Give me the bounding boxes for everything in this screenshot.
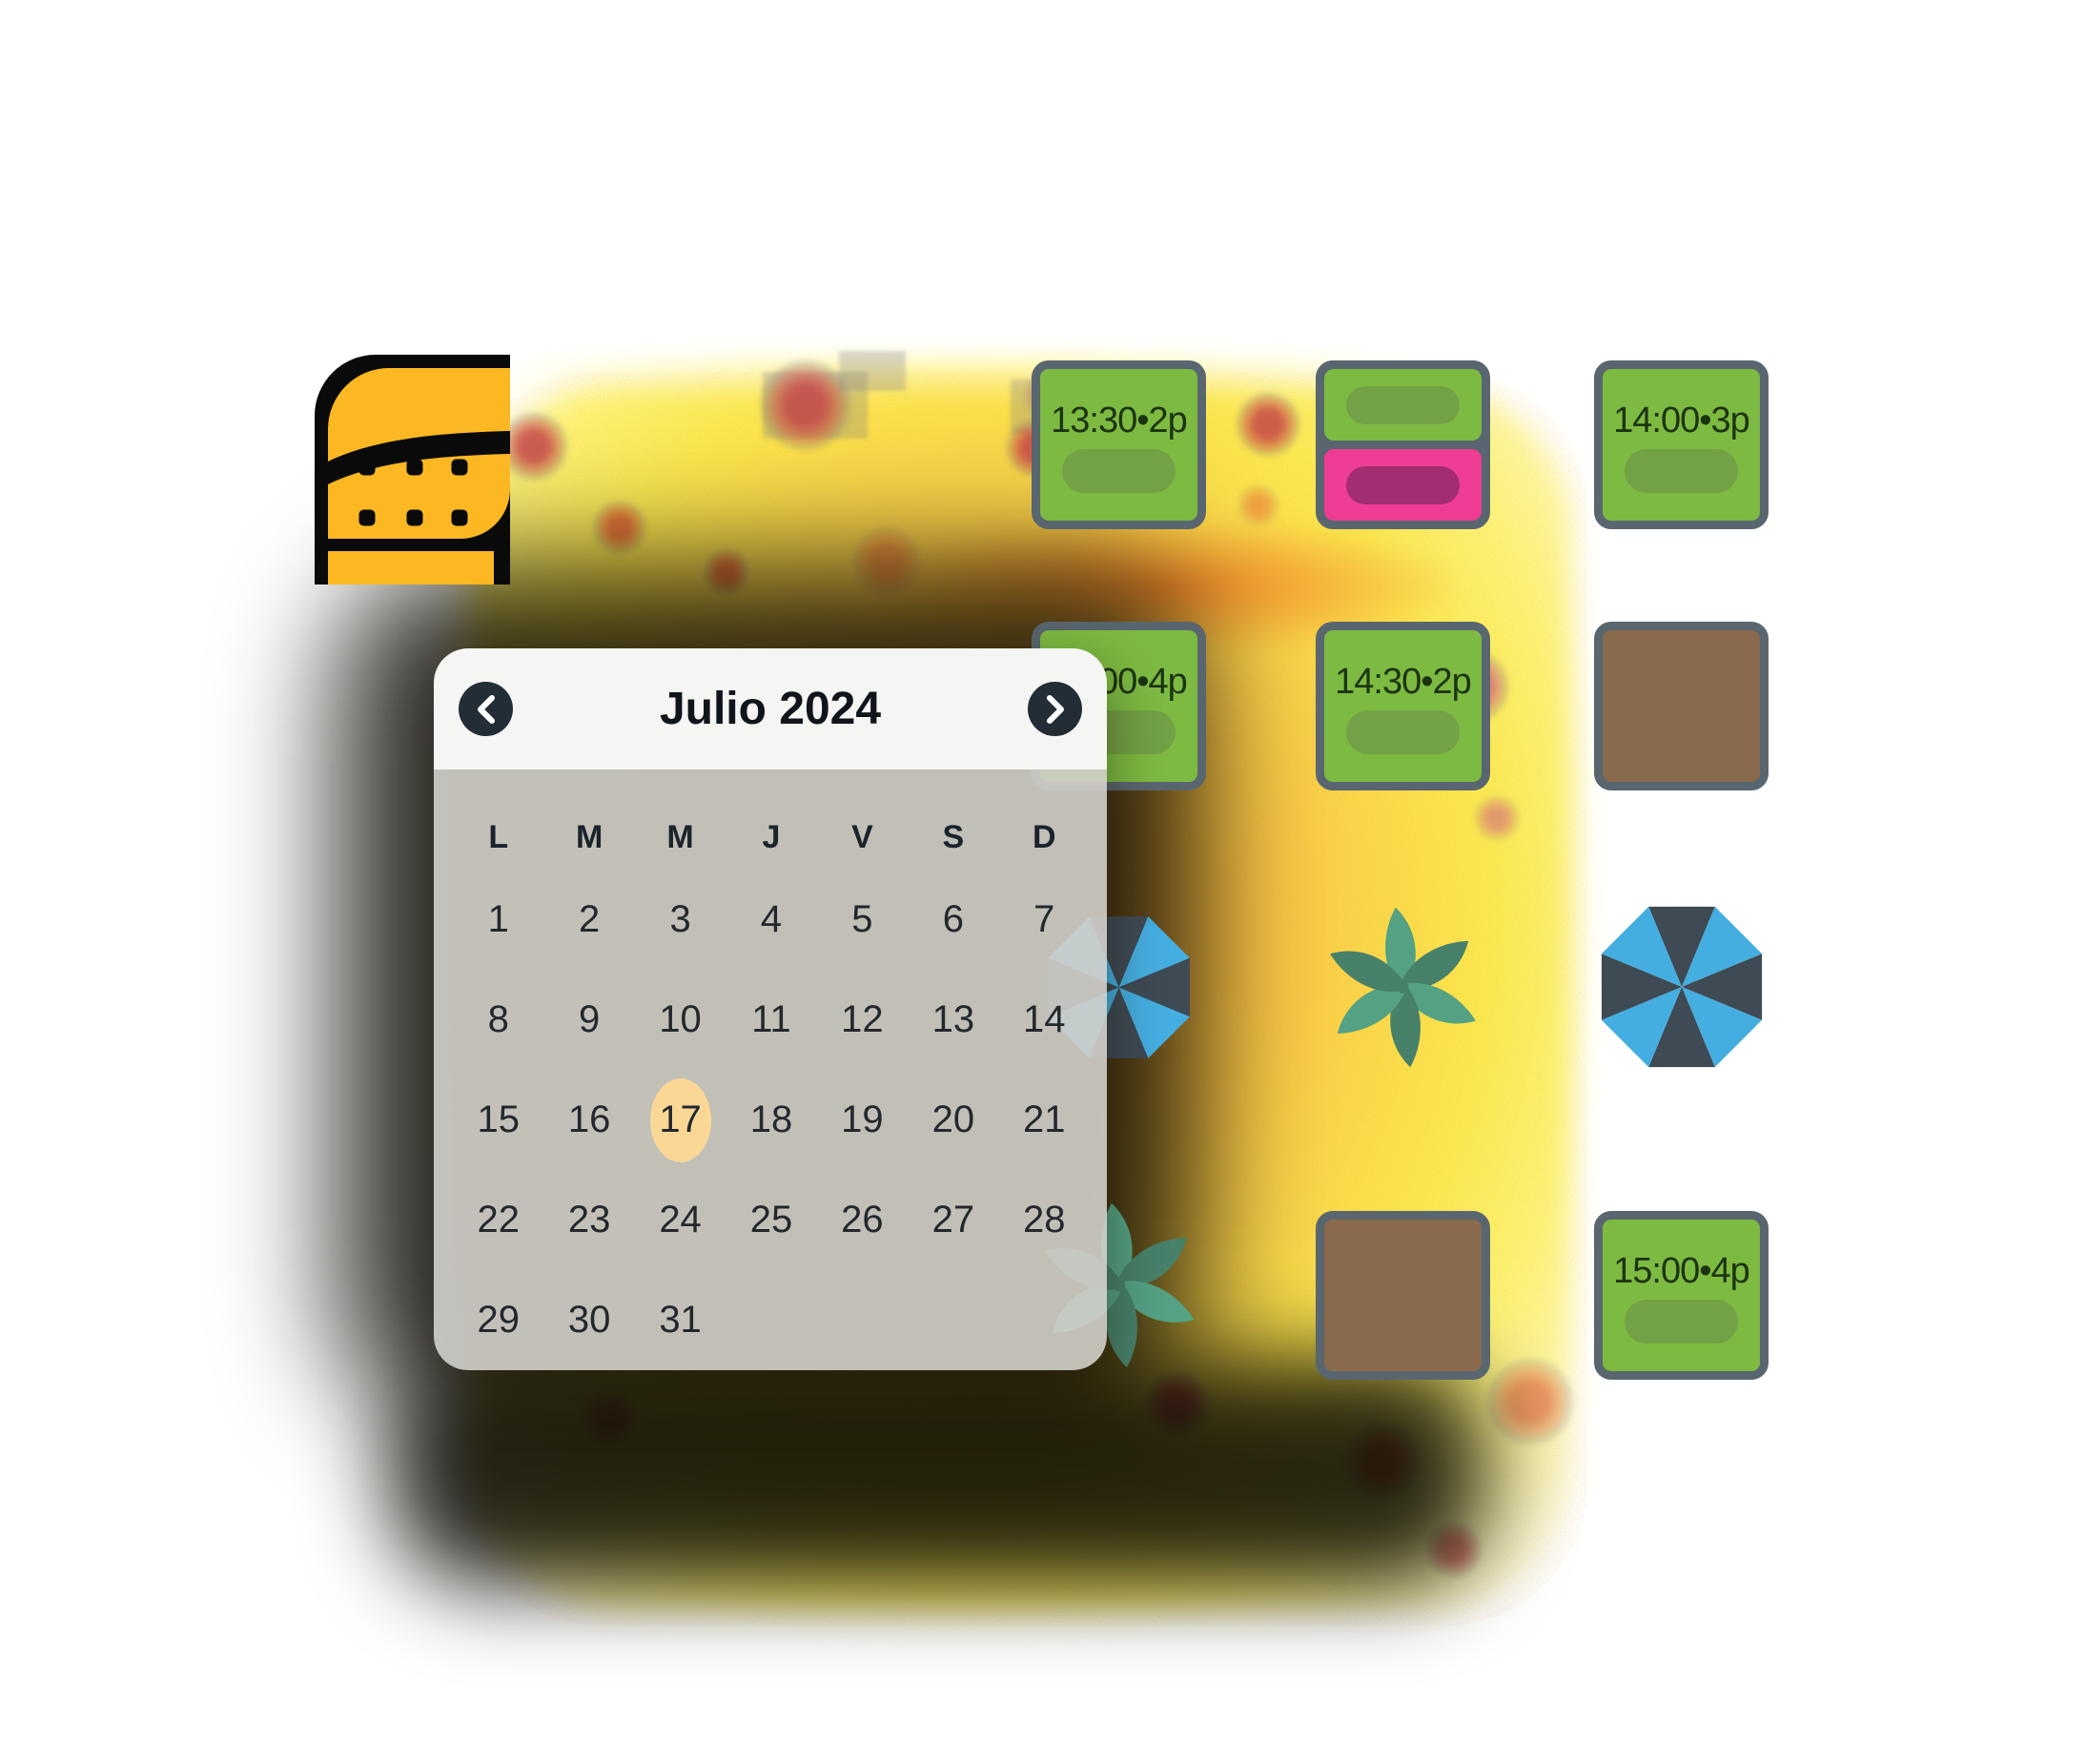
day-number: 18 — [750, 1098, 793, 1141]
empty-table[interactable] — [1316, 1211, 1490, 1380]
table-seat-indicator — [1625, 449, 1738, 493]
day-number: 13 — [932, 998, 975, 1041]
day-cell[interactable]: 9 — [543, 970, 634, 1070]
day-cell[interactable]: 2 — [543, 870, 634, 970]
day-number: 15 — [477, 1098, 520, 1141]
noise-speckle — [760, 359, 851, 451]
reservation-time-label: 13:30•2p — [1051, 401, 1187, 440]
day-cell-empty — [908, 1270, 998, 1370]
day-cell[interactable]: 30 — [543, 1270, 634, 1370]
day-cell[interactable]: 23 — [543, 1170, 634, 1270]
day-number: 21 — [1023, 1098, 1066, 1141]
day-number: 16 — [568, 1098, 611, 1141]
date-picker: Julio 2024 LMMJVSD 123456789101112131415… — [434, 648, 1107, 1370]
noise-speckle — [1425, 1521, 1483, 1578]
day-cell-empty — [817, 1270, 908, 1370]
reservation-time-label: 15:00•4p — [1613, 1252, 1749, 1290]
day-cell[interactable]: 28 — [999, 1170, 1090, 1270]
weekday-label: V — [817, 812, 908, 862]
day-cell[interactable]: 6 — [908, 870, 998, 970]
day-number: 27 — [932, 1199, 975, 1241]
reservation-card[interactable]: 15:00•4p — [1594, 1211, 1769, 1380]
day-number: 22 — [477, 1199, 520, 1241]
weekday-label: S — [908, 812, 998, 862]
day-number: 19 — [841, 1098, 884, 1141]
day-cell[interactable]: 18 — [726, 1070, 816, 1170]
reservation-card[interactable]: 13:30•2p — [1032, 360, 1206, 529]
weekday-label: L — [453, 812, 543, 862]
day-number: 12 — [841, 998, 884, 1041]
day-cell[interactable]: 8 — [453, 970, 543, 1070]
reservation-time-label: 14:30•2p — [1335, 663, 1471, 701]
day-number: 9 — [579, 998, 600, 1041]
noise-speckle — [1474, 795, 1520, 841]
reservation-time-label: 14:00•3p — [1613, 401, 1749, 440]
date-picker-header: Julio 2024 — [434, 648, 1107, 769]
plant-icon — [1319, 904, 1486, 1076]
noise-speckle — [704, 549, 749, 595]
day-cell[interactable]: 22 — [453, 1170, 543, 1270]
previous-month-button[interactable] — [459, 682, 513, 736]
day-cell[interactable]: 21 — [999, 1070, 1090, 1170]
reservation-segment-pink — [1324, 449, 1482, 521]
weekday-header-row: LMMJVSD — [453, 812, 1090, 862]
reservation-card[interactable]: 14:00•3p — [1594, 360, 1769, 529]
day-number: 14 — [1023, 998, 1066, 1041]
day-number: 7 — [1033, 898, 1054, 941]
day-cell-selected[interactable]: 17 — [635, 1070, 726, 1170]
day-number: 31 — [659, 1299, 702, 1342]
next-month-button[interactable] — [1028, 682, 1082, 736]
umbrella-icon — [1593, 898, 1770, 1080]
day-cell[interactable]: 13 — [908, 970, 998, 1070]
noise-speckle — [1237, 484, 1279, 526]
noise-speckle — [1486, 1358, 1574, 1446]
day-grid: 1234567891011121314151617181920212223242… — [453, 870, 1090, 1370]
day-number: 20 — [932, 1098, 975, 1141]
day-cell[interactable]: 12 — [817, 970, 908, 1070]
day-number: 25 — [750, 1199, 793, 1241]
noise-speckle — [1236, 392, 1300, 457]
noise-speckle — [852, 526, 921, 595]
day-cell[interactable]: 11 — [726, 970, 816, 1070]
empty-table[interactable] — [1594, 622, 1769, 790]
day-number: 11 — [751, 998, 791, 1041]
split-reservation-card[interactable] — [1316, 360, 1490, 529]
noise-speckle — [582, 1389, 639, 1446]
day-number: 28 — [1023, 1199, 1066, 1241]
logo-bottom-strip — [328, 551, 494, 585]
table-seat-indicator — [1625, 1300, 1738, 1344]
chevron-right-icon — [1043, 693, 1068, 726]
day-number: 17 — [659, 1098, 702, 1141]
day-cell[interactable]: 7 — [999, 870, 1090, 970]
brand-logo — [315, 355, 510, 585]
day-number: 1 — [488, 898, 509, 941]
day-number: 8 — [488, 998, 509, 1041]
noise-speckle — [1145, 1371, 1210, 1436]
day-cell[interactable]: 4 — [726, 870, 816, 970]
day-number: 2 — [579, 898, 600, 941]
weekday-label: D — [999, 812, 1090, 862]
day-number: 6 — [943, 898, 964, 941]
weekday-label: M — [543, 812, 634, 862]
reservation-card[interactable]: 14:30•2p — [1316, 622, 1490, 790]
reservation-segment-green — [1324, 369, 1482, 441]
noise-speckle — [593, 501, 646, 554]
day-cell[interactable]: 31 — [635, 1270, 726, 1370]
day-cell[interactable]: 26 — [817, 1170, 908, 1270]
day-number: 26 — [841, 1199, 884, 1241]
table-seat-indicator — [1346, 386, 1460, 424]
day-cell[interactable]: 19 — [817, 1070, 908, 1170]
day-number: 5 — [851, 898, 872, 941]
calendar-shadow-bottom — [391, 1359, 1487, 1588]
day-cell[interactable]: 20 — [908, 1070, 998, 1170]
day-cell[interactable]: 27 — [908, 1170, 998, 1270]
day-cell[interactable]: 3 — [635, 870, 726, 970]
day-cell[interactable]: 24 — [635, 1170, 726, 1270]
pixel-noise-patch — [763, 372, 868, 439]
day-number: 24 — [659, 1199, 702, 1241]
day-cell-empty — [999, 1270, 1090, 1370]
table-seat-indicator — [1346, 466, 1460, 504]
day-cell[interactable]: 29 — [453, 1270, 543, 1370]
noise-speckle — [1344, 1423, 1421, 1499]
day-cell[interactable]: 25 — [726, 1170, 816, 1270]
day-cell[interactable]: 15 — [453, 1070, 543, 1170]
table-seat-indicator — [1062, 449, 1176, 493]
pixel-noise-patch — [839, 351, 906, 391]
day-number: 3 — [669, 898, 690, 941]
day-number: 29 — [477, 1299, 520, 1342]
day-number: 4 — [761, 898, 782, 941]
day-number: 10 — [659, 998, 702, 1041]
day-cell[interactable]: 5 — [817, 870, 908, 970]
date-picker-body: LMMJVSD 12345678910111213141516171819202… — [434, 769, 1107, 1370]
weekday-label: J — [726, 812, 816, 862]
day-number: 23 — [568, 1199, 611, 1241]
day-cell[interactable]: 1 — [453, 870, 543, 970]
day-cell[interactable]: 14 — [999, 970, 1090, 1070]
chevron-left-icon — [474, 693, 499, 726]
table-seat-indicator — [1346, 710, 1460, 754]
weekday-label: M — [635, 812, 726, 862]
illustration-canvas: 13:30•2p14:00•3p14:00•4p14:30•2p15:00•4p… — [0, 0, 2086, 1764]
day-cell-empty — [726, 1270, 816, 1370]
day-cell[interactable]: 16 — [543, 1070, 634, 1170]
day-number: 30 — [568, 1299, 611, 1342]
day-cell[interactable]: 10 — [635, 970, 726, 1070]
month-year-label: Julio 2024 — [660, 683, 881, 735]
